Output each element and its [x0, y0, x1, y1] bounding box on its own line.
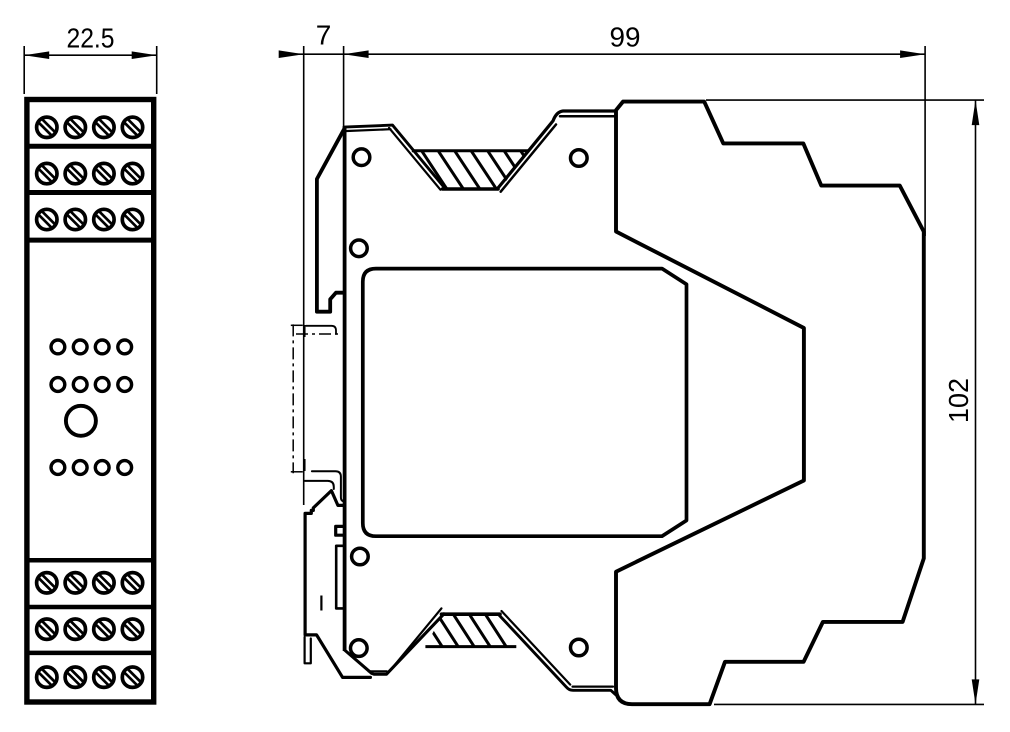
svg-text:99: 99 [610, 22, 641, 53]
svg-text:102: 102 [943, 378, 974, 423]
svg-text:7: 7 [316, 20, 332, 51]
svg-text:22.5: 22.5 [67, 23, 115, 54]
